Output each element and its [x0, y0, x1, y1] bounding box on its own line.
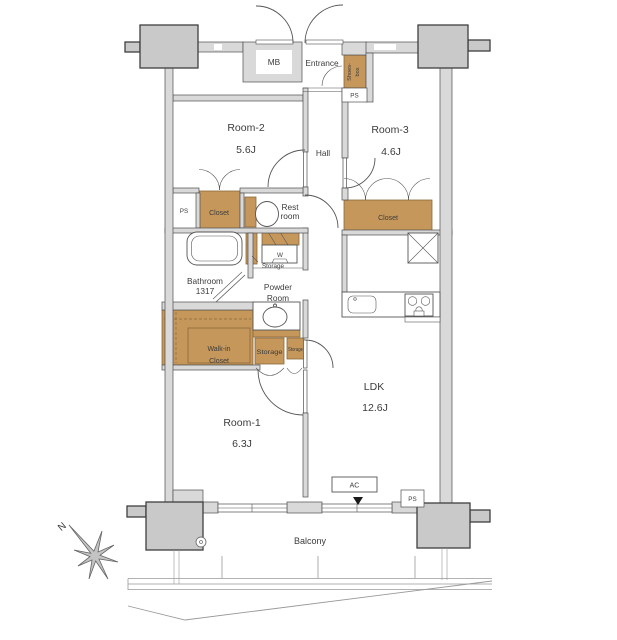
powder-room-label-1: Powder [264, 282, 292, 292]
mb-door-leaf [256, 40, 293, 44]
ground-line [128, 581, 492, 620]
entrance-door-arc [305, 5, 343, 43]
closet-room3-label: Closet [378, 215, 398, 222]
entrance-label: Entrance [305, 58, 339, 68]
closet2-door-arc-left [199, 170, 220, 191]
restroom-door-arc [305, 195, 338, 228]
room2-area: 5.6J [236, 144, 256, 156]
ldk-area: 12.6J [362, 402, 388, 414]
restroom-label-2: room [281, 211, 300, 221]
compass-star [69, 525, 118, 579]
column-bottom-left [146, 502, 203, 550]
meter-box-label: MB [268, 57, 281, 67]
closet2-door-arc-right [220, 170, 241, 191]
laundry-shelf [262, 232, 299, 245]
room3-name: Room-3 [371, 124, 409, 136]
floor-plan: N Room-2 5.6J Room-3 4.6J Room-1 6.3J LD… [0, 0, 617, 640]
entrance-inner-arc [322, 66, 342, 86]
ldk-door-arc [305, 340, 333, 368]
hall-label: Hall [316, 148, 330, 158]
ac-label: AC [350, 483, 360, 490]
storage-b-label: Storage [288, 347, 303, 353]
floor-plan-page: N Room-2 5.6J Room-3 4.6J Room-1 6.3J LD… [0, 0, 617, 640]
mb-door-arc [256, 6, 293, 43]
toilet [256, 202, 279, 227]
kitchen-sink [348, 296, 376, 313]
washer-label: W [277, 252, 283, 259]
walk-in-closet-label-2: Closet [209, 358, 229, 365]
vanity-counter-strip [253, 330, 300, 337]
column-bottom-right [417, 503, 470, 548]
powder-room-label-2: Room [267, 293, 289, 303]
room2-name: Room-2 [227, 122, 265, 134]
room3-door-arc [345, 158, 375, 188]
closet3-door-arc-3 [387, 179, 409, 201]
column-top-right [418, 25, 468, 68]
closet-room2-label: Closet [209, 210, 229, 217]
room1-name: Room-1 [223, 417, 261, 429]
shoes-box-label-1: Shoes- [347, 63, 353, 81]
walk-in-closet-label-1: Walk-in [207, 346, 230, 353]
ps-bottom-label: PS [408, 496, 416, 503]
column-top-left [140, 25, 198, 68]
shoes-box-label-2: box [355, 67, 361, 76]
ldk-door-leaf [304, 340, 308, 368]
compass: N [56, 521, 118, 579]
bathroom-label: Bathroom [187, 276, 223, 286]
storage-b-door-arc [287, 368, 302, 374]
closet3-door-arc-2 [366, 179, 388, 201]
closet3-door-arc-4 [409, 179, 431, 201]
storage-a-label: Storage [257, 349, 284, 356]
ldk-name: LDK [364, 381, 384, 393]
balcony-label: Balcony [294, 536, 327, 546]
storage-hall-label: Storage [262, 263, 285, 270]
room3-door-leaf [343, 158, 347, 188]
room1-door-leaf [304, 370, 308, 413]
ps-entrance-label: PS [350, 93, 358, 100]
ps-left-label: PS [180, 208, 188, 215]
room2-door-leaf [304, 152, 308, 187]
entrance-door-leaf [306, 40, 343, 44]
room3-area: 4.6J [381, 146, 401, 158]
drain-cap [196, 537, 206, 547]
room1-area: 6.3J [232, 438, 252, 450]
room1-door-arc [258, 370, 303, 415]
room2-door-arc [268, 150, 305, 187]
toilet-tank [245, 197, 256, 227]
compass-north-label: N [56, 521, 69, 534]
basin [263, 307, 287, 327]
bathroom-size: 1317 [196, 286, 215, 296]
